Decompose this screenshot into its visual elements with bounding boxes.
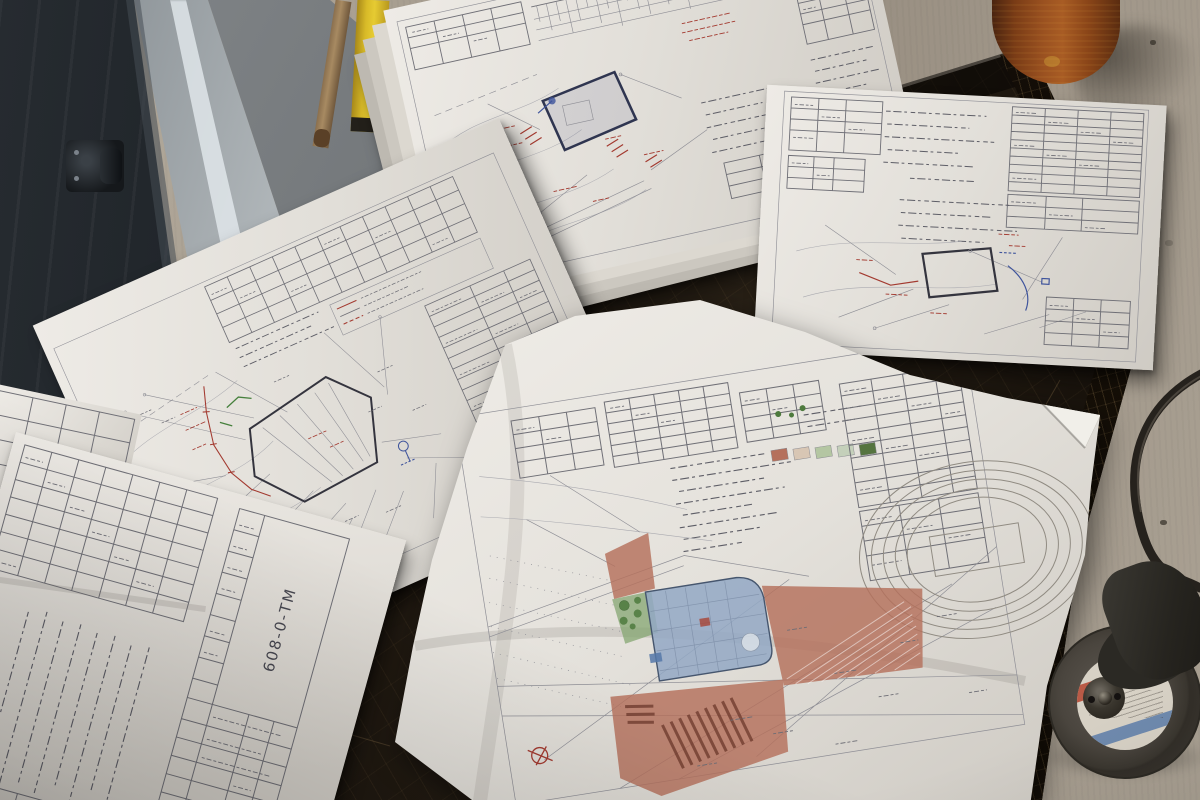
flange-hole [1088,696,1095,703]
notes-rows [879,111,1022,244]
main-building-roof [639,574,774,682]
building-fan-lines [257,380,373,499]
gost-title-block [137,509,350,800]
pipeline-profile-band [531,0,778,44]
title-block-grid [1006,107,1144,234]
title-block-grid [784,0,875,44]
sheet-genplan [385,286,1135,800]
green-markup [214,392,259,430]
bottom-grid [0,769,75,800]
spindle-pin [1098,691,1112,705]
genplan-drawing [385,286,1135,800]
spec-tables [787,97,883,193]
red-stamp [680,12,737,42]
photo-canvas: 608-0-ТМ [0,0,1200,800]
profile-table [406,2,531,70]
flange-hole [1114,693,1121,700]
building-outline [230,364,399,516]
angle-grinder [1040,555,1200,800]
notes-text-rotated [0,607,151,800]
